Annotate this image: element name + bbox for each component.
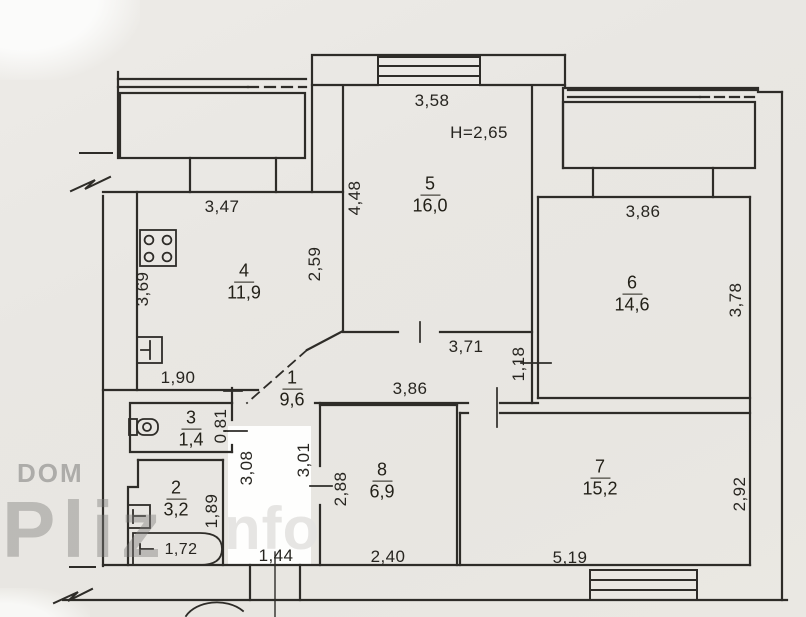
room-number: 6 [622,274,642,295]
dim-room8-left: 2,88 [331,472,351,507]
room-area: 16,0 [412,197,447,216]
dim-kitchen-left: 3,69 [133,272,153,307]
watermark-info-fragment: nfo [224,494,320,563]
balcony-left [118,72,306,192]
dim-hall-left: 3,08 [237,451,257,486]
dim-hall-right: 3,01 [294,443,314,478]
room-number: 3 [181,409,201,430]
kitchen-walls [103,87,343,403]
room-area: 6,9 [369,483,394,502]
floorplan-scan: 3,58 H=2,65 4,48 3,71 3,47 3,69 2,59 1,9… [0,0,806,617]
dim-wc-height: 0,81 [211,409,231,444]
dim-room6-right: 3,78 [726,283,746,318]
dim-room5-bottom: 3,71 [449,337,484,357]
dim-kitchen-right: 2,59 [305,247,325,282]
room-label-4: 4 11,9 [227,262,261,303]
kitchen-sink-icon [137,337,162,363]
toilet-icon [129,419,158,435]
watermark-pliz: Pliz [2,484,168,576]
room-label-5: 5 16,0 [412,175,447,216]
room-area: 9,6 [279,391,304,410]
room-area: 14,6 [614,296,649,315]
dim-bath-height: 1,89 [202,494,222,529]
room-label-1: 1 9,6 [279,369,304,410]
dim-room7-right: 2,92 [730,477,750,512]
room-label-7: 7 15,2 [582,458,617,499]
room-number: 7 [590,458,610,479]
dim-room5-left: 4,48 [345,181,365,216]
dim-kitchen-top: 3,47 [205,197,240,217]
ceiling-height-label: H=2,65 [450,123,508,143]
window-room5 [378,57,480,85]
dim-room8-bottom: 2,40 [371,547,406,567]
dim-corridor-bottom: 3,86 [393,379,428,399]
window-room7 [590,570,697,600]
dim-room7-bottom: 5,19 [553,548,588,568]
room-number: 5 [420,175,440,196]
room-label-3: 3 1,4 [178,409,203,450]
room-label-8: 8 6,9 [369,461,394,502]
stove-icon [140,230,176,266]
entry-door-arc [186,602,243,616]
room-area: 1,4 [178,431,203,450]
room-area: 15,2 [582,480,617,499]
room-label-6: 6 14,6 [614,274,649,315]
room-number: 2 [166,479,186,500]
dim-kitchen-bottom: 1,90 [161,368,196,388]
room-number: 8 [372,461,392,482]
room-number: 4 [234,262,254,283]
dim-bathtub-length: 1,72 [165,541,198,559]
dim-room6-top: 3,86 [626,202,661,222]
dim-room5-top: 3,58 [415,91,450,111]
room-area: 11,9 [227,284,261,303]
dim-corridor-right: 1,18 [509,347,529,382]
room-number: 1 [282,369,302,390]
balcony-right [563,88,757,197]
